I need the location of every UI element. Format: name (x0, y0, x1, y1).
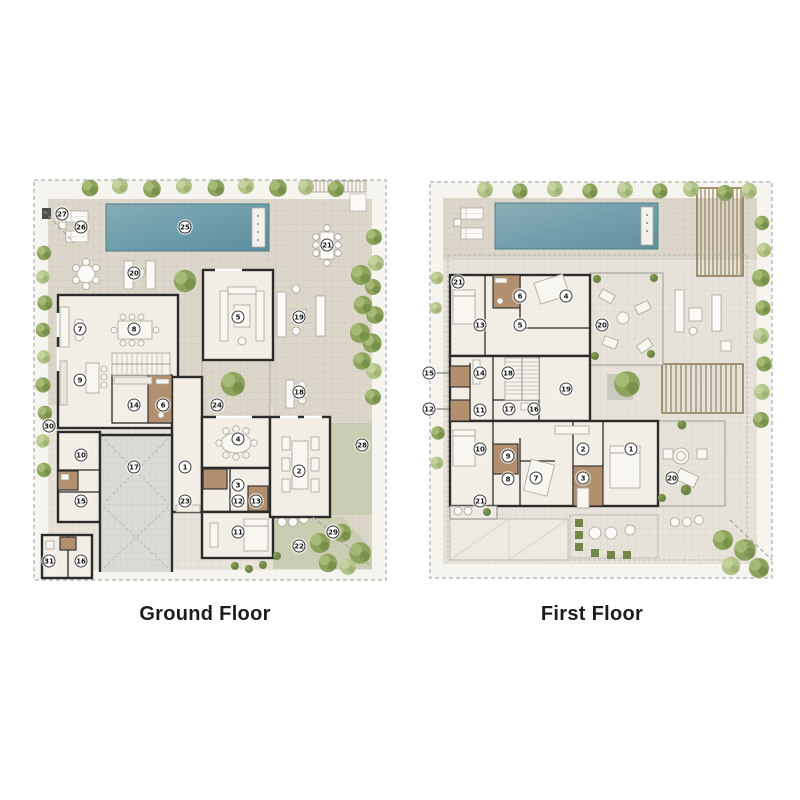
ground-floor-drawing (30, 175, 390, 585)
ground-floor-label: Ground Floor (139, 603, 270, 626)
first-floor-drawing (425, 178, 775, 585)
swimming-pool (495, 203, 658, 249)
swimming-pool (106, 204, 269, 251)
roof-below (450, 519, 568, 560)
entry-tree (174, 270, 196, 292)
lower-terrace (658, 421, 725, 506)
first-floor-label: First Floor (541, 603, 643, 626)
stairs (505, 358, 539, 400)
courtyard-tree (221, 372, 245, 396)
courtyard-tree (614, 371, 640, 397)
garage (100, 435, 172, 572)
ground-floor-plan: 2726252120785199146241830101714228152331… (30, 175, 390, 585)
stairs (112, 353, 170, 375)
first-floor-plan: 2164135201514181912111716102198732021 (425, 178, 775, 585)
